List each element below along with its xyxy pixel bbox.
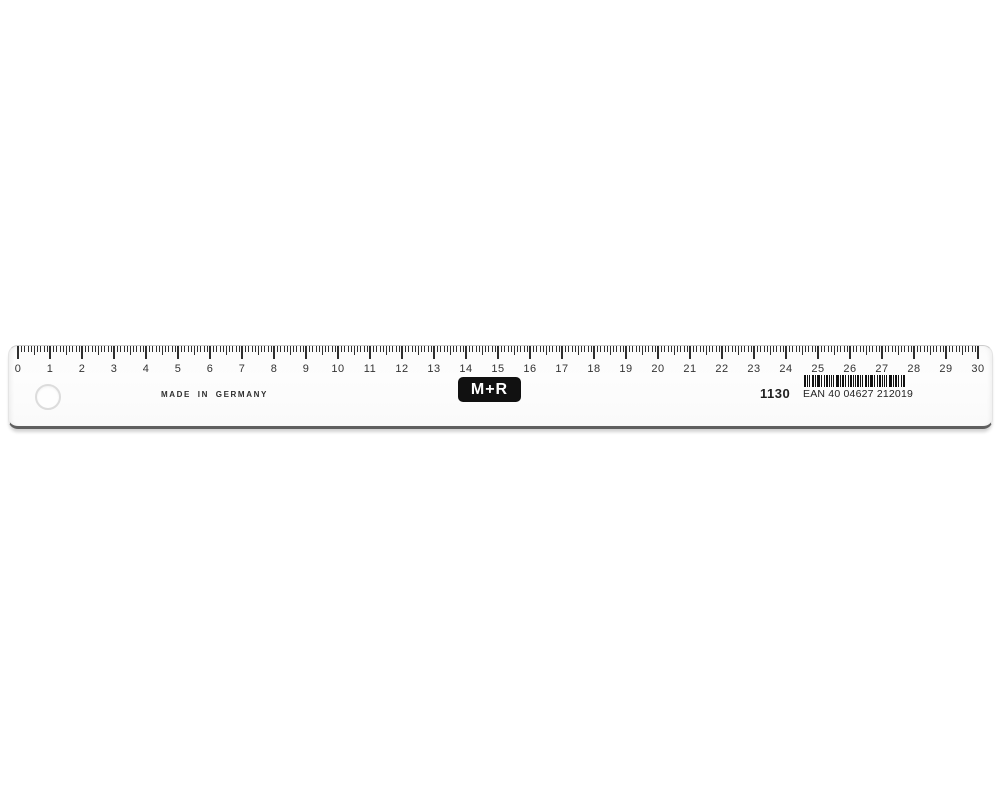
tick: [488, 346, 489, 352]
scale-number: 20: [642, 363, 674, 375]
tick: [92, 346, 93, 352]
made-in-label: MADE IN GERMANY: [161, 390, 268, 399]
tick: [824, 346, 825, 352]
scale-number: 16: [514, 363, 546, 375]
tick: [540, 346, 541, 352]
tick: [959, 346, 960, 352]
tick: [700, 346, 701, 352]
tick: [866, 346, 867, 355]
scale-number: 14: [450, 363, 482, 375]
tick: [837, 346, 838, 352]
tick: [373, 346, 374, 352]
tick: [207, 346, 208, 352]
barcode-bar: [807, 375, 808, 387]
tick: [396, 346, 397, 352]
tick: [117, 346, 118, 352]
tick: [648, 346, 649, 352]
barcode-bar: [812, 375, 814, 387]
barcode-bar: [831, 375, 832, 387]
tick: [152, 346, 153, 352]
tick: [111, 346, 112, 352]
tick: [520, 346, 521, 352]
tick: [444, 346, 445, 352]
tick: [642, 346, 643, 355]
tick: [37, 346, 38, 352]
tick: [770, 346, 771, 355]
tick: [657, 346, 659, 359]
barcode-bar: [804, 375, 806, 387]
tick: [72, 346, 73, 352]
tick: [261, 346, 262, 352]
tick: [956, 346, 957, 352]
tick: [977, 346, 979, 359]
tick: [95, 346, 96, 352]
tick: [543, 346, 544, 352]
barcode-bar: [809, 375, 810, 387]
tick: [232, 346, 233, 352]
barcode-bar: [868, 375, 869, 387]
tick: [401, 346, 403, 359]
tick: [271, 346, 272, 352]
tick: [47, 346, 48, 352]
product-photo: 0123456789101112131415161718192021222324…: [0, 0, 1000, 800]
scale-number: 13: [418, 363, 450, 375]
tick: [335, 346, 336, 352]
tick: [479, 346, 480, 352]
tick: [808, 346, 809, 352]
tick: [972, 346, 973, 352]
tick: [184, 346, 185, 352]
tick: [140, 346, 141, 352]
tick: [264, 346, 265, 352]
barcode-bar: [882, 375, 883, 387]
barcode-bar: [857, 375, 859, 387]
tick: [721, 346, 723, 359]
tick: [188, 346, 189, 352]
tick: [273, 346, 275, 359]
tick: [145, 346, 147, 359]
barcode-bar: [845, 375, 846, 387]
tick: [241, 346, 243, 359]
tick: [418, 346, 419, 355]
tick: [652, 346, 653, 352]
tick: [469, 346, 470, 352]
tick: [367, 346, 368, 352]
tick: [344, 346, 345, 352]
barcode-bar: [855, 375, 856, 387]
tick: [879, 346, 880, 352]
tick: [514, 346, 515, 355]
tick: [796, 346, 797, 352]
tick: [428, 346, 429, 352]
tick: [792, 346, 793, 352]
tick: [156, 346, 157, 352]
tick: [305, 346, 307, 359]
scale-number: 29: [930, 363, 962, 375]
scale-number: 7: [226, 363, 258, 375]
tick: [629, 346, 630, 352]
tick: [885, 346, 886, 352]
tick: [213, 346, 214, 352]
tick: [904, 346, 905, 352]
tick: [149, 346, 150, 352]
tick: [392, 346, 393, 352]
tick: [245, 346, 246, 352]
tick: [332, 346, 333, 352]
barcode-bar: [874, 375, 875, 387]
tick: [817, 346, 819, 359]
tick: [844, 346, 845, 352]
scale-number: 19: [610, 363, 642, 375]
tick: [485, 346, 486, 352]
tick: [236, 346, 237, 352]
tick: [248, 346, 249, 352]
tick: [476, 346, 477, 352]
tick: [933, 346, 934, 352]
tick: [348, 346, 349, 352]
tick: [536, 346, 537, 352]
tick: [671, 346, 672, 352]
tick: [168, 346, 169, 352]
tick: [501, 346, 502, 352]
tick: [940, 346, 941, 352]
tick: [856, 346, 857, 352]
tick: [162, 346, 163, 355]
tick: [945, 346, 947, 359]
tick: [613, 346, 614, 352]
barcode-bar: [842, 375, 844, 387]
barcode-bar: [848, 375, 849, 387]
tick: [869, 346, 870, 352]
tick: [120, 346, 121, 352]
tick: [517, 346, 518, 352]
tick: [369, 346, 371, 359]
tick: [575, 346, 576, 352]
barcode-bar: [853, 375, 854, 387]
tick: [735, 346, 736, 352]
tick: [412, 346, 413, 352]
tick: [85, 346, 86, 352]
scale-number: 24: [770, 363, 802, 375]
tick: [911, 346, 912, 352]
tick: [386, 346, 387, 355]
tick: [433, 346, 435, 359]
tick: [287, 346, 288, 352]
tick: [559, 346, 560, 352]
scale-number: 15: [482, 363, 514, 375]
tick: [597, 346, 598, 352]
tick: [380, 346, 381, 352]
barcode-bar: [821, 375, 822, 387]
tick: [783, 346, 784, 352]
tick: [53, 346, 54, 352]
tick: [888, 346, 889, 352]
tick: [63, 346, 64, 352]
scale-number: 11: [354, 363, 386, 375]
tick: [341, 346, 342, 352]
tick: [952, 346, 953, 352]
tick: [453, 346, 454, 352]
tick: [226, 346, 227, 355]
tick: [316, 346, 317, 352]
tick: [421, 346, 422, 352]
tick: [719, 346, 720, 352]
barcode-bar: [903, 375, 905, 387]
tick: [901, 346, 902, 352]
tick: [936, 346, 937, 352]
tick: [79, 346, 80, 352]
tick: [581, 346, 582, 352]
scale-number: 4: [130, 363, 162, 375]
tick: [863, 346, 864, 352]
tick: [431, 346, 432, 352]
tick: [101, 346, 102, 352]
tick: [908, 346, 909, 352]
tick: [751, 346, 752, 352]
tick: [408, 346, 409, 352]
tick: [738, 346, 739, 355]
barcode-bar: [870, 375, 873, 387]
tick: [716, 346, 717, 352]
tick: [664, 346, 665, 352]
scale-number: 0: [2, 363, 34, 375]
tick: [383, 346, 384, 352]
scale-number: 25: [802, 363, 834, 375]
tick: [639, 346, 640, 352]
tick: [325, 346, 326, 352]
tick: [584, 346, 585, 352]
tick: [399, 346, 400, 352]
tick: [328, 346, 329, 352]
tick: [200, 346, 201, 352]
barcode-bar: [889, 375, 892, 387]
tick: [440, 346, 441, 352]
tick: [268, 346, 269, 352]
tick: [892, 346, 893, 352]
tick: [965, 346, 966, 352]
tick: [881, 346, 883, 359]
tick: [831, 346, 832, 352]
tick: [216, 346, 217, 352]
tick: [98, 346, 99, 355]
tick: [872, 346, 873, 352]
barcode-bar: [840, 375, 841, 387]
tick: [465, 346, 467, 359]
tick: [415, 346, 416, 352]
model-number: 1130: [760, 386, 790, 401]
tick: [447, 346, 448, 352]
tick: [785, 346, 787, 359]
tick: [780, 346, 781, 352]
tick: [744, 346, 745, 352]
tick: [898, 346, 899, 355]
tick: [181, 346, 182, 352]
tick: [354, 346, 355, 355]
tick: [376, 346, 377, 352]
tick: [840, 346, 841, 352]
tick: [687, 346, 688, 352]
tick: [680, 346, 681, 352]
tick: [309, 346, 310, 352]
tick: [504, 346, 505, 352]
tick: [524, 346, 525, 352]
tick: [284, 346, 285, 352]
tick: [533, 346, 534, 352]
tick: [789, 346, 790, 352]
tick: [549, 346, 550, 352]
tick: [511, 346, 512, 352]
tick: [497, 346, 499, 359]
ean-label: EAN 40 04627 212019: [803, 388, 913, 400]
tick: [767, 346, 768, 352]
tick: [508, 346, 509, 352]
tick: [220, 346, 221, 352]
tick: [76, 346, 77, 352]
tick: [456, 346, 457, 352]
tick: [732, 346, 733, 352]
tick: [949, 346, 950, 352]
tick: [684, 346, 685, 352]
tick: [108, 346, 109, 352]
tick: [757, 346, 758, 352]
tick: [482, 346, 483, 355]
tick: [424, 346, 425, 352]
tick: [49, 346, 51, 359]
barcode-bar: [893, 375, 894, 387]
tick: [463, 346, 464, 352]
barcode-bar: [877, 375, 878, 387]
tick: [239, 346, 240, 352]
tick: [764, 346, 765, 352]
tick: [17, 346, 19, 359]
tick: [924, 346, 925, 352]
tick: [40, 346, 41, 352]
tick: [337, 346, 339, 359]
tick: [876, 346, 877, 352]
tick: [113, 346, 115, 359]
ruler: 0123456789101112131415161718192021222324…: [8, 345, 993, 429]
tick: [712, 346, 713, 352]
tick: [255, 346, 256, 352]
tick: [632, 346, 633, 352]
tick: [849, 346, 851, 359]
tick: [760, 346, 761, 352]
tick: [706, 346, 707, 355]
barcode-bar: [879, 375, 881, 387]
tick: [360, 346, 361, 352]
tick: [312, 346, 313, 352]
scale-number: 12: [386, 363, 418, 375]
hanging-hole: [35, 384, 61, 410]
tick: [568, 346, 569, 352]
tick: [709, 346, 710, 352]
tick: [143, 346, 144, 352]
tick: [703, 346, 704, 352]
tick: [930, 346, 931, 355]
tick: [693, 346, 694, 352]
tick: [44, 346, 45, 352]
tick: [56, 346, 57, 352]
tick: [209, 346, 211, 359]
tick: [492, 346, 493, 352]
tick: [389, 346, 390, 352]
barcode-bar: [884, 375, 885, 387]
tick: [527, 346, 528, 352]
tick: [357, 346, 358, 352]
tick: [895, 346, 896, 352]
tick: [136, 346, 137, 352]
barcode-bar: [817, 375, 820, 387]
tick: [593, 346, 595, 359]
tick: [31, 346, 32, 352]
tick: [625, 346, 627, 359]
tick: [668, 346, 669, 352]
tick: [565, 346, 566, 352]
tick: [177, 346, 179, 359]
tick: [805, 346, 806, 352]
scale-number: 23: [738, 363, 770, 375]
scale-number: 27: [866, 363, 898, 375]
tick: [191, 346, 192, 352]
scale-number: 26: [834, 363, 866, 375]
tick: [773, 346, 774, 352]
scale-number: 18: [578, 363, 610, 375]
tick: [319, 346, 320, 352]
tick: [127, 346, 128, 352]
scale-number: 9: [290, 363, 322, 375]
barcode-bar: [860, 375, 861, 387]
tick: [725, 346, 726, 352]
scale-number: 21: [674, 363, 706, 375]
scale-number: 8: [258, 363, 290, 375]
scale-number: 10: [322, 363, 354, 375]
tick: [578, 346, 579, 355]
scale-number: 22: [706, 363, 738, 375]
tick: [104, 346, 105, 352]
tick: [600, 346, 601, 352]
barcode-bar: [836, 375, 839, 387]
tick: [748, 346, 749, 352]
tick: [322, 346, 323, 355]
tick: [620, 346, 621, 352]
barcode-bar: [815, 375, 816, 387]
tick: [962, 346, 963, 355]
tick: [437, 346, 438, 352]
tick: [623, 346, 624, 352]
scale-number: 3: [98, 363, 130, 375]
tick: [853, 346, 854, 352]
tick: [689, 346, 691, 359]
barcode-bar: [895, 375, 897, 387]
tick: [828, 346, 829, 352]
tick: [204, 346, 205, 352]
tick: [728, 346, 729, 352]
tick: [588, 346, 589, 352]
barcode-bar: [824, 375, 825, 387]
tick: [133, 346, 134, 352]
scale-number: 1: [34, 363, 66, 375]
tick: [364, 346, 365, 352]
scale-number: 30: [962, 363, 994, 375]
tick: [495, 346, 496, 352]
tick: [21, 346, 22, 352]
tick: [636, 346, 637, 352]
tick: [472, 346, 473, 352]
tick: [223, 346, 224, 352]
tick: [917, 346, 918, 352]
tick: [351, 346, 352, 352]
tick: [34, 346, 35, 355]
